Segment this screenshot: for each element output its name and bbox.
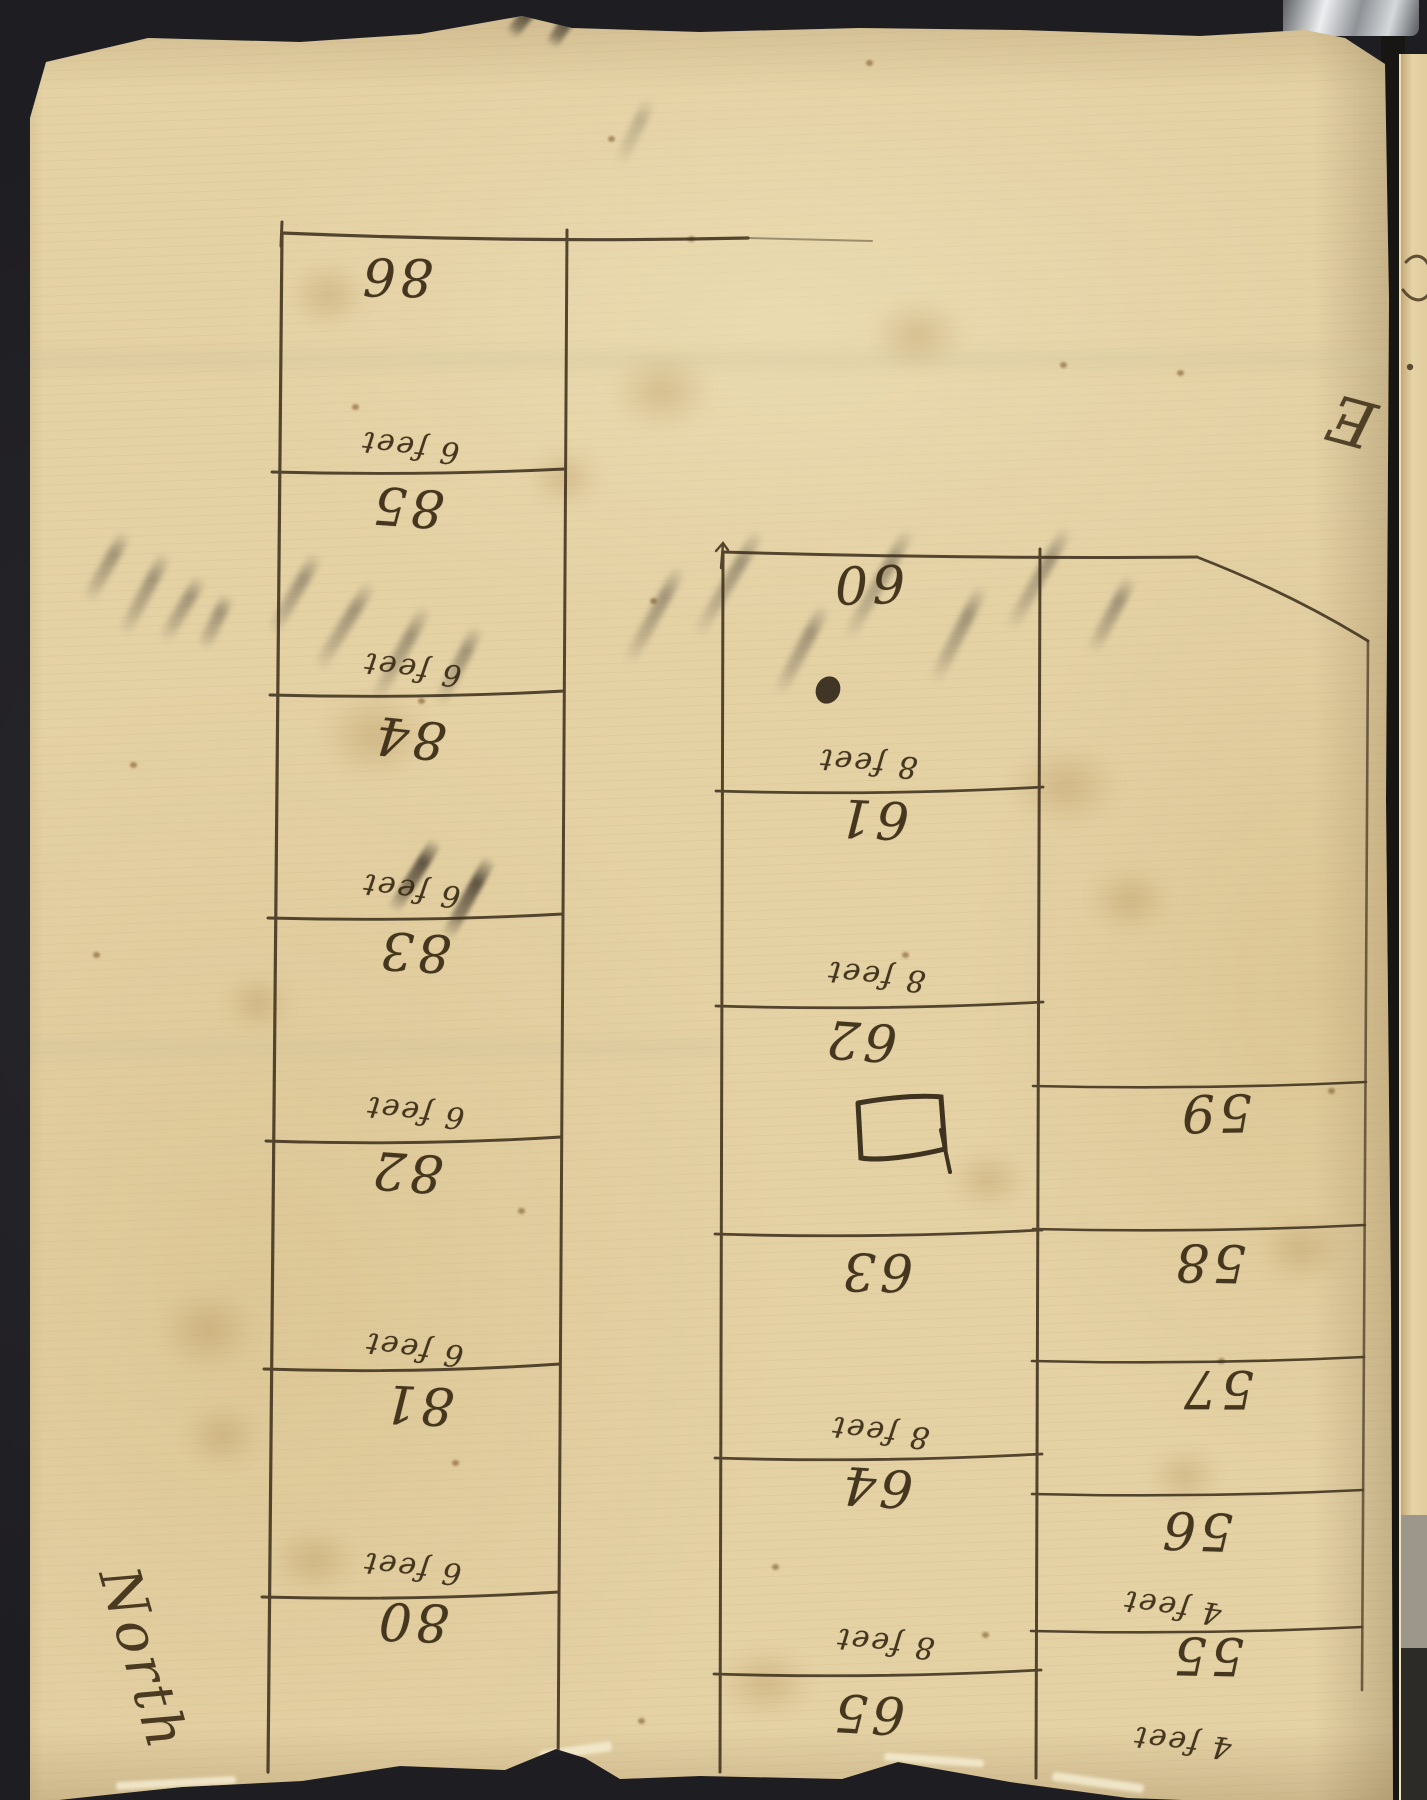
- ink-blot: [811, 672, 845, 708]
- lot-number-58: 58: [1171, 1231, 1246, 1292]
- lot-number-84: 84: [369, 703, 449, 770]
- lot-number-81: 81: [378, 1372, 455, 1436]
- lot-number-86: 86: [358, 245, 433, 306]
- lot-number-61: 61: [833, 786, 910, 850]
- lot-number-56: 56: [1158, 1499, 1234, 1562]
- adjacent-page-edge: [1399, 54, 1427, 1800]
- lot-number-63: 63: [838, 1240, 913, 1301]
- book-scan: 86 6 feet 85 6 feet 84 6 feet 83 6 feet …: [0, 0, 1427, 1800]
- lot-number-60: 60: [830, 552, 906, 615]
- cover-shadow: [1401, 1648, 1427, 1800]
- lot-number-82: 82: [367, 1138, 445, 1203]
- small-square-mark: [858, 1096, 950, 1172]
- lot-number-65: 65: [829, 1681, 906, 1745]
- lot-number-85: 85: [368, 473, 446, 538]
- cover-sheen: [1401, 1515, 1427, 1648]
- lot-number-80: 80: [374, 1590, 450, 1653]
- lot-number-83: 83: [375, 919, 452, 983]
- lot-number-59: 59: [1177, 1081, 1252, 1142]
- lot-number-55: 55: [1169, 1624, 1244, 1685]
- lot-number-64: 64: [837, 1453, 915, 1518]
- manuscript-page: 86 6 feet 85 6 feet 84 6 feet 83 6 feet …: [0, 0, 1427, 1800]
- lot-number-57: 57: [1180, 1358, 1254, 1418]
- lot-number-62: 62: [821, 1007, 899, 1072]
